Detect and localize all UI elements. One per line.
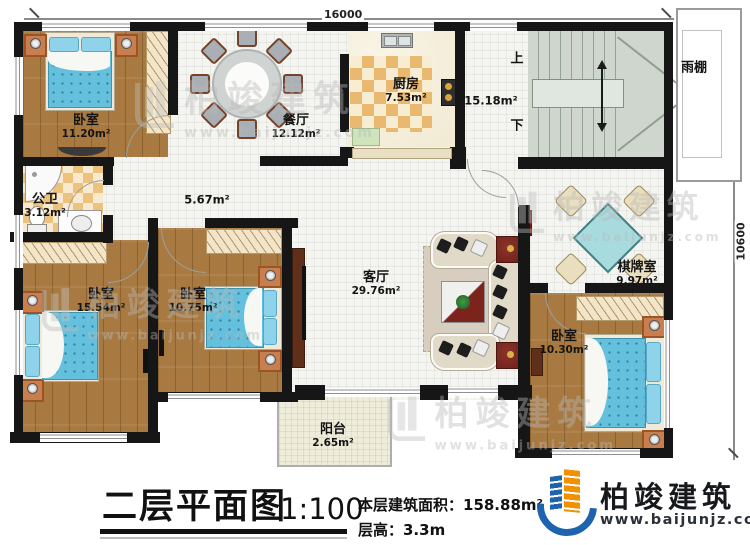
- dining-chair: [283, 74, 303, 94]
- wall: [148, 218, 158, 392]
- nightstand: [21, 379, 44, 402]
- room-label-bedroom-bottom-right: 卧室 10.30m²: [540, 330, 589, 356]
- burner: [445, 94, 452, 101]
- window: [14, 310, 23, 375]
- dimension-tick: [661, 8, 671, 18]
- stair-arrow-up: [597, 55, 607, 69]
- wardrobe: [206, 229, 282, 254]
- kitchen-pass-through: [352, 148, 452, 159]
- nightstand: [21, 291, 44, 314]
- wall: [518, 157, 673, 169]
- wall: [340, 54, 349, 132]
- balcony-sliding-door: [325, 388, 420, 397]
- window: [664, 320, 673, 428]
- plan-scale: 1:100: [280, 492, 364, 526]
- room-area: 15.18m²: [464, 95, 517, 108]
- dimension-height: 10600: [735, 220, 748, 262]
- wall: [14, 22, 23, 57]
- stair-arrow: [601, 63, 603, 123]
- room-area: 9.97m²: [616, 275, 657, 287]
- window: [368, 22, 434, 31]
- nightstand: [24, 34, 47, 57]
- wall: [518, 283, 530, 458]
- wall: [260, 156, 348, 166]
- window: [42, 22, 130, 31]
- room-label-living: 客厅 29.76m²: [352, 271, 401, 297]
- title-underline: [100, 529, 347, 534]
- stair-up-label: 上: [510, 53, 523, 68]
- room-name: 公卫: [24, 193, 65, 208]
- wall: [282, 218, 292, 392]
- room-label-canopy: 雨棚: [681, 62, 707, 77]
- room-label-dining: 餐厅 12.12m²: [272, 114, 321, 140]
- wall: [518, 205, 530, 283]
- tv: [302, 266, 306, 340]
- nightstand: [642, 430, 666, 450]
- room-name: 餐厅: [272, 114, 321, 129]
- kitchen-mat: [352, 128, 380, 146]
- pillow: [49, 37, 79, 52]
- wall: [517, 22, 673, 31]
- wall: [168, 28, 178, 115]
- dining-chair: [190, 74, 210, 94]
- dimension-tick: [29, 8, 39, 18]
- pillow: [81, 37, 111, 52]
- room-label-kitchen: 厨房 7.53m²: [385, 78, 426, 104]
- down-text: 下: [510, 120, 523, 135]
- room-name: 卧室: [540, 330, 589, 345]
- room-area: 10.75m²: [169, 302, 218, 314]
- window: [205, 22, 307, 31]
- room-name: 阳台: [312, 423, 353, 438]
- room-name: 卧室: [62, 114, 111, 129]
- nightstand: [642, 316, 666, 338]
- wall: [420, 385, 448, 400]
- plan-title: 二层平面图: [102, 478, 287, 529]
- window: [448, 387, 498, 398]
- wall: [307, 22, 368, 31]
- logo-building-orange: [564, 469, 580, 513]
- stair-arrow-down: [597, 123, 607, 137]
- room-area: 2.65m²: [312, 437, 353, 449]
- window: [14, 57, 23, 115]
- stair-rail: [532, 79, 624, 108]
- wall: [14, 268, 23, 310]
- wall: [14, 157, 114, 166]
- room-area: 11.20m²: [62, 128, 111, 140]
- room-area: 29.76m²: [352, 285, 401, 297]
- room-area: 7.53m²: [385, 92, 426, 104]
- pillow: [25, 314, 40, 345]
- stair-down-label: 下: [510, 120, 523, 135]
- room-label-bathroom: 公卫 3.12m²: [24, 193, 65, 219]
- dining-chair: [237, 119, 257, 139]
- wall: [295, 385, 325, 400]
- watermark-logo-icon: [388, 398, 425, 441]
- pillow: [646, 342, 661, 382]
- room-name: 棋牌室: [616, 261, 657, 276]
- room-label-corridor: 5.67m²: [184, 194, 229, 207]
- shower-drain: [32, 172, 37, 177]
- pillow: [646, 384, 661, 424]
- floor-height-text: 层高：3.3m: [358, 519, 445, 540]
- stove: [441, 79, 456, 106]
- nightstand: [258, 350, 282, 372]
- title-underline-thin: [100, 537, 347, 539]
- room-label-bedroom-bottom-left: 卧室 15.54m²: [77, 288, 126, 314]
- plant: [456, 295, 470, 309]
- wall: [103, 157, 113, 185]
- dimension-width: 16000: [322, 8, 364, 21]
- company-website: www.baijunjz.com: [600, 512, 750, 528]
- room-name: 客厅: [352, 271, 401, 286]
- vanity-basin: [71, 215, 92, 232]
- floor-plan-page: 16000 10600 卧室 11.20m² 餐厅 12.12m² 厨房 7.5…: [0, 0, 750, 545]
- sink-basin: [384, 36, 397, 46]
- up-text: 上: [510, 53, 523, 68]
- sink-basin: [398, 36, 411, 46]
- kitchen-sink: [381, 33, 413, 48]
- window: [470, 22, 517, 31]
- staircase: [528, 31, 664, 157]
- logo-building-blue: [550, 475, 562, 511]
- nightstand: [115, 34, 138, 57]
- rain-canopy: [676, 8, 742, 182]
- room-area: 12.12m²: [272, 128, 321, 140]
- rain-canopy-inner: [682, 30, 722, 158]
- room-area: 15.54m²: [77, 302, 126, 314]
- dining-table-top: [225, 62, 269, 106]
- floor-area-text: 本层建筑面积：158.88m²: [358, 494, 543, 515]
- wardrobe: [20, 242, 107, 264]
- room-label-bedroom-top-left: 卧室 11.20m²: [62, 114, 111, 140]
- room-name: 卧室: [77, 288, 126, 303]
- nightstand: [258, 266, 282, 288]
- room-area: 10.30m²: [540, 344, 589, 356]
- coffee-table: [441, 281, 485, 323]
- tv: [159, 330, 164, 356]
- burner: [445, 83, 452, 90]
- window: [14, 215, 23, 268]
- room-area: 5.67m²: [184, 194, 229, 207]
- room-name: 卧室: [169, 288, 218, 303]
- company-name: 柏竣建筑: [600, 474, 736, 516]
- window: [40, 433, 127, 442]
- window: [168, 393, 260, 402]
- room-name: 厨房: [385, 78, 426, 93]
- room-name: 雨棚: [681, 62, 707, 77]
- pillow: [263, 318, 277, 345]
- pillow: [263, 290, 277, 317]
- window: [552, 449, 640, 458]
- room-label-chess: 棋牌室 9.97m²: [616, 261, 657, 287]
- room-label-balcony: 阳台 2.65m²: [312, 423, 353, 449]
- room-label-bedroom-bottom-mid: 卧室 10.75m²: [169, 288, 218, 314]
- company-logo-icon: [536, 468, 592, 532]
- room-area: 3.12m²: [24, 207, 65, 219]
- wall: [10, 232, 108, 242]
- room-label-stair-hall: 15.18m²: [464, 95, 517, 108]
- wall: [455, 22, 465, 159]
- wall: [664, 22, 673, 320]
- pillow: [25, 346, 40, 377]
